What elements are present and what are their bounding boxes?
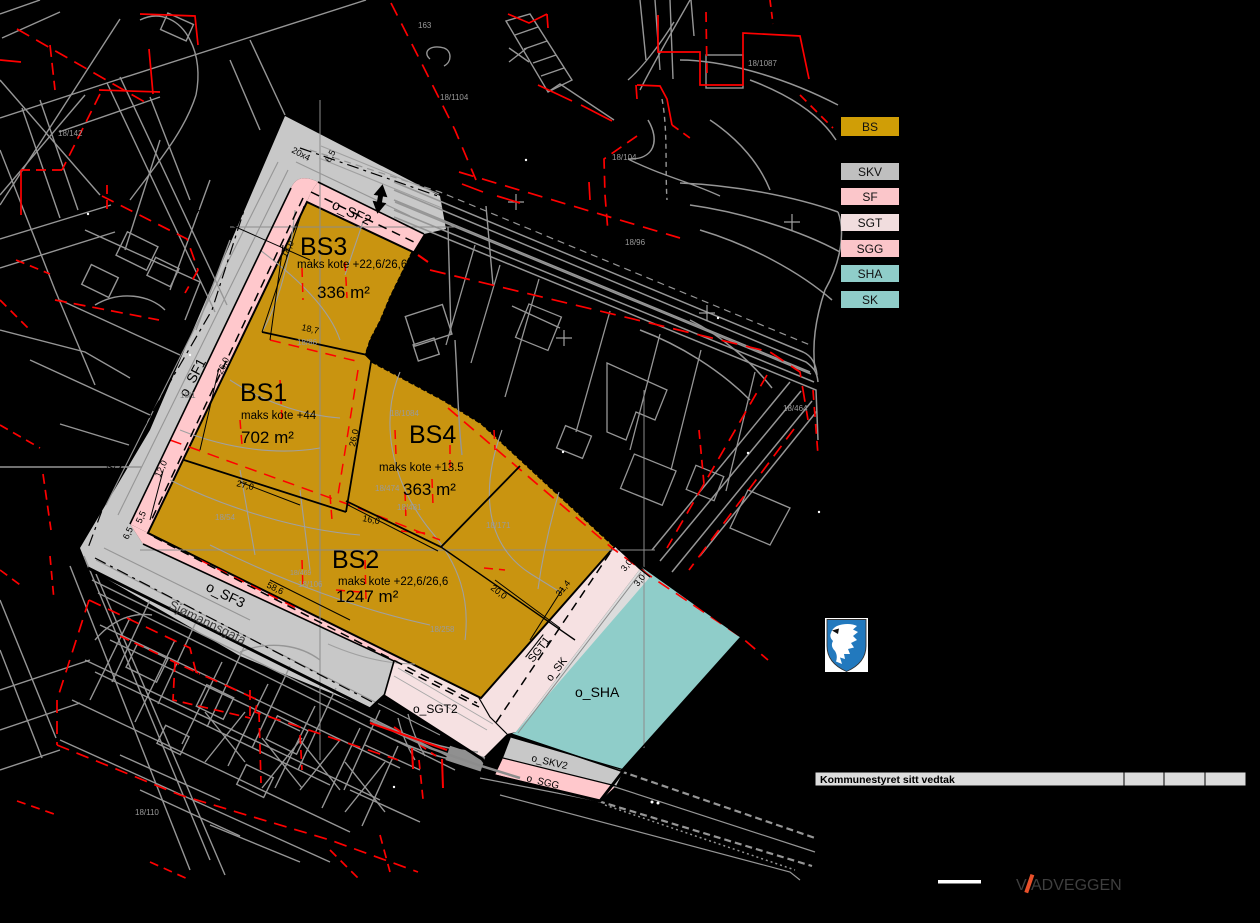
svg-text:SHA: SHA [858, 267, 883, 281]
svg-text:ADVEGGEN: ADVEGGEN [1031, 877, 1122, 894]
svg-text:18/258: 18/258 [430, 625, 455, 634]
svg-text:maks kote +13.5: maks kote +13.5 [379, 462, 464, 474]
svg-text:336 m²: 336 m² [317, 283, 370, 302]
svg-text:BS3: BS3 [300, 233, 347, 261]
svg-text:18/142: 18/142 [58, 129, 83, 138]
svg-text:18/54: 18/54 [215, 513, 236, 522]
svg-text:18/469: 18/469 [290, 570, 312, 577]
svg-text:18/474: 18/474 [375, 484, 400, 493]
svg-text:SGT: SGT [858, 216, 883, 230]
svg-text:163: 163 [418, 21, 432, 30]
svg-text:18/86: 18/86 [297, 338, 318, 347]
svg-text:18/481: 18/481 [397, 503, 422, 512]
svg-text:maks kote +44: maks kote +44 [241, 410, 317, 422]
svg-text:SK: SK [862, 293, 878, 307]
svg-text:18/106: 18/106 [298, 580, 323, 589]
svg-text:18/1087: 18/1087 [748, 59, 777, 68]
svg-text:1247 m²: 1247 m² [336, 587, 399, 606]
svg-text:18/110: 18/110 [135, 808, 159, 817]
svg-text:BS4: BS4 [409, 421, 456, 449]
svg-text:18/171: 18/171 [486, 521, 511, 530]
svg-text:18/1104: 18/1104 [440, 93, 469, 102]
svg-text:o_SHA: o_SHA [575, 684, 620, 700]
svg-text:18/1: 18/1 [180, 391, 196, 400]
svg-text:18/1084: 18/1084 [390, 409, 419, 418]
svg-text:SGG: SGG [857, 242, 884, 256]
svg-text:Kommunestyret sitt vedtak: Kommunestyret sitt vedtak [820, 774, 955, 786]
svg-text:BS1: BS1 [240, 379, 287, 407]
svg-text:18/464: 18/464 [783, 404, 808, 413]
svg-text:SF: SF [862, 190, 877, 204]
svg-text:o_SGT2: o_SGT2 [413, 702, 458, 716]
svg-text:maks kote +22,6/26,6: maks kote +22,6/26,6 [297, 259, 407, 271]
svg-text:702 m²: 702 m² [241, 428, 294, 447]
svg-text:18/104: 18/104 [612, 153, 637, 162]
svg-text:BS: BS [862, 120, 878, 134]
svg-text:SKV: SKV [858, 165, 882, 179]
svg-text:18/96: 18/96 [625, 238, 646, 247]
svg-text:BS2: BS2 [332, 546, 379, 574]
svg-text:363 m²: 363 m² [403, 480, 456, 499]
